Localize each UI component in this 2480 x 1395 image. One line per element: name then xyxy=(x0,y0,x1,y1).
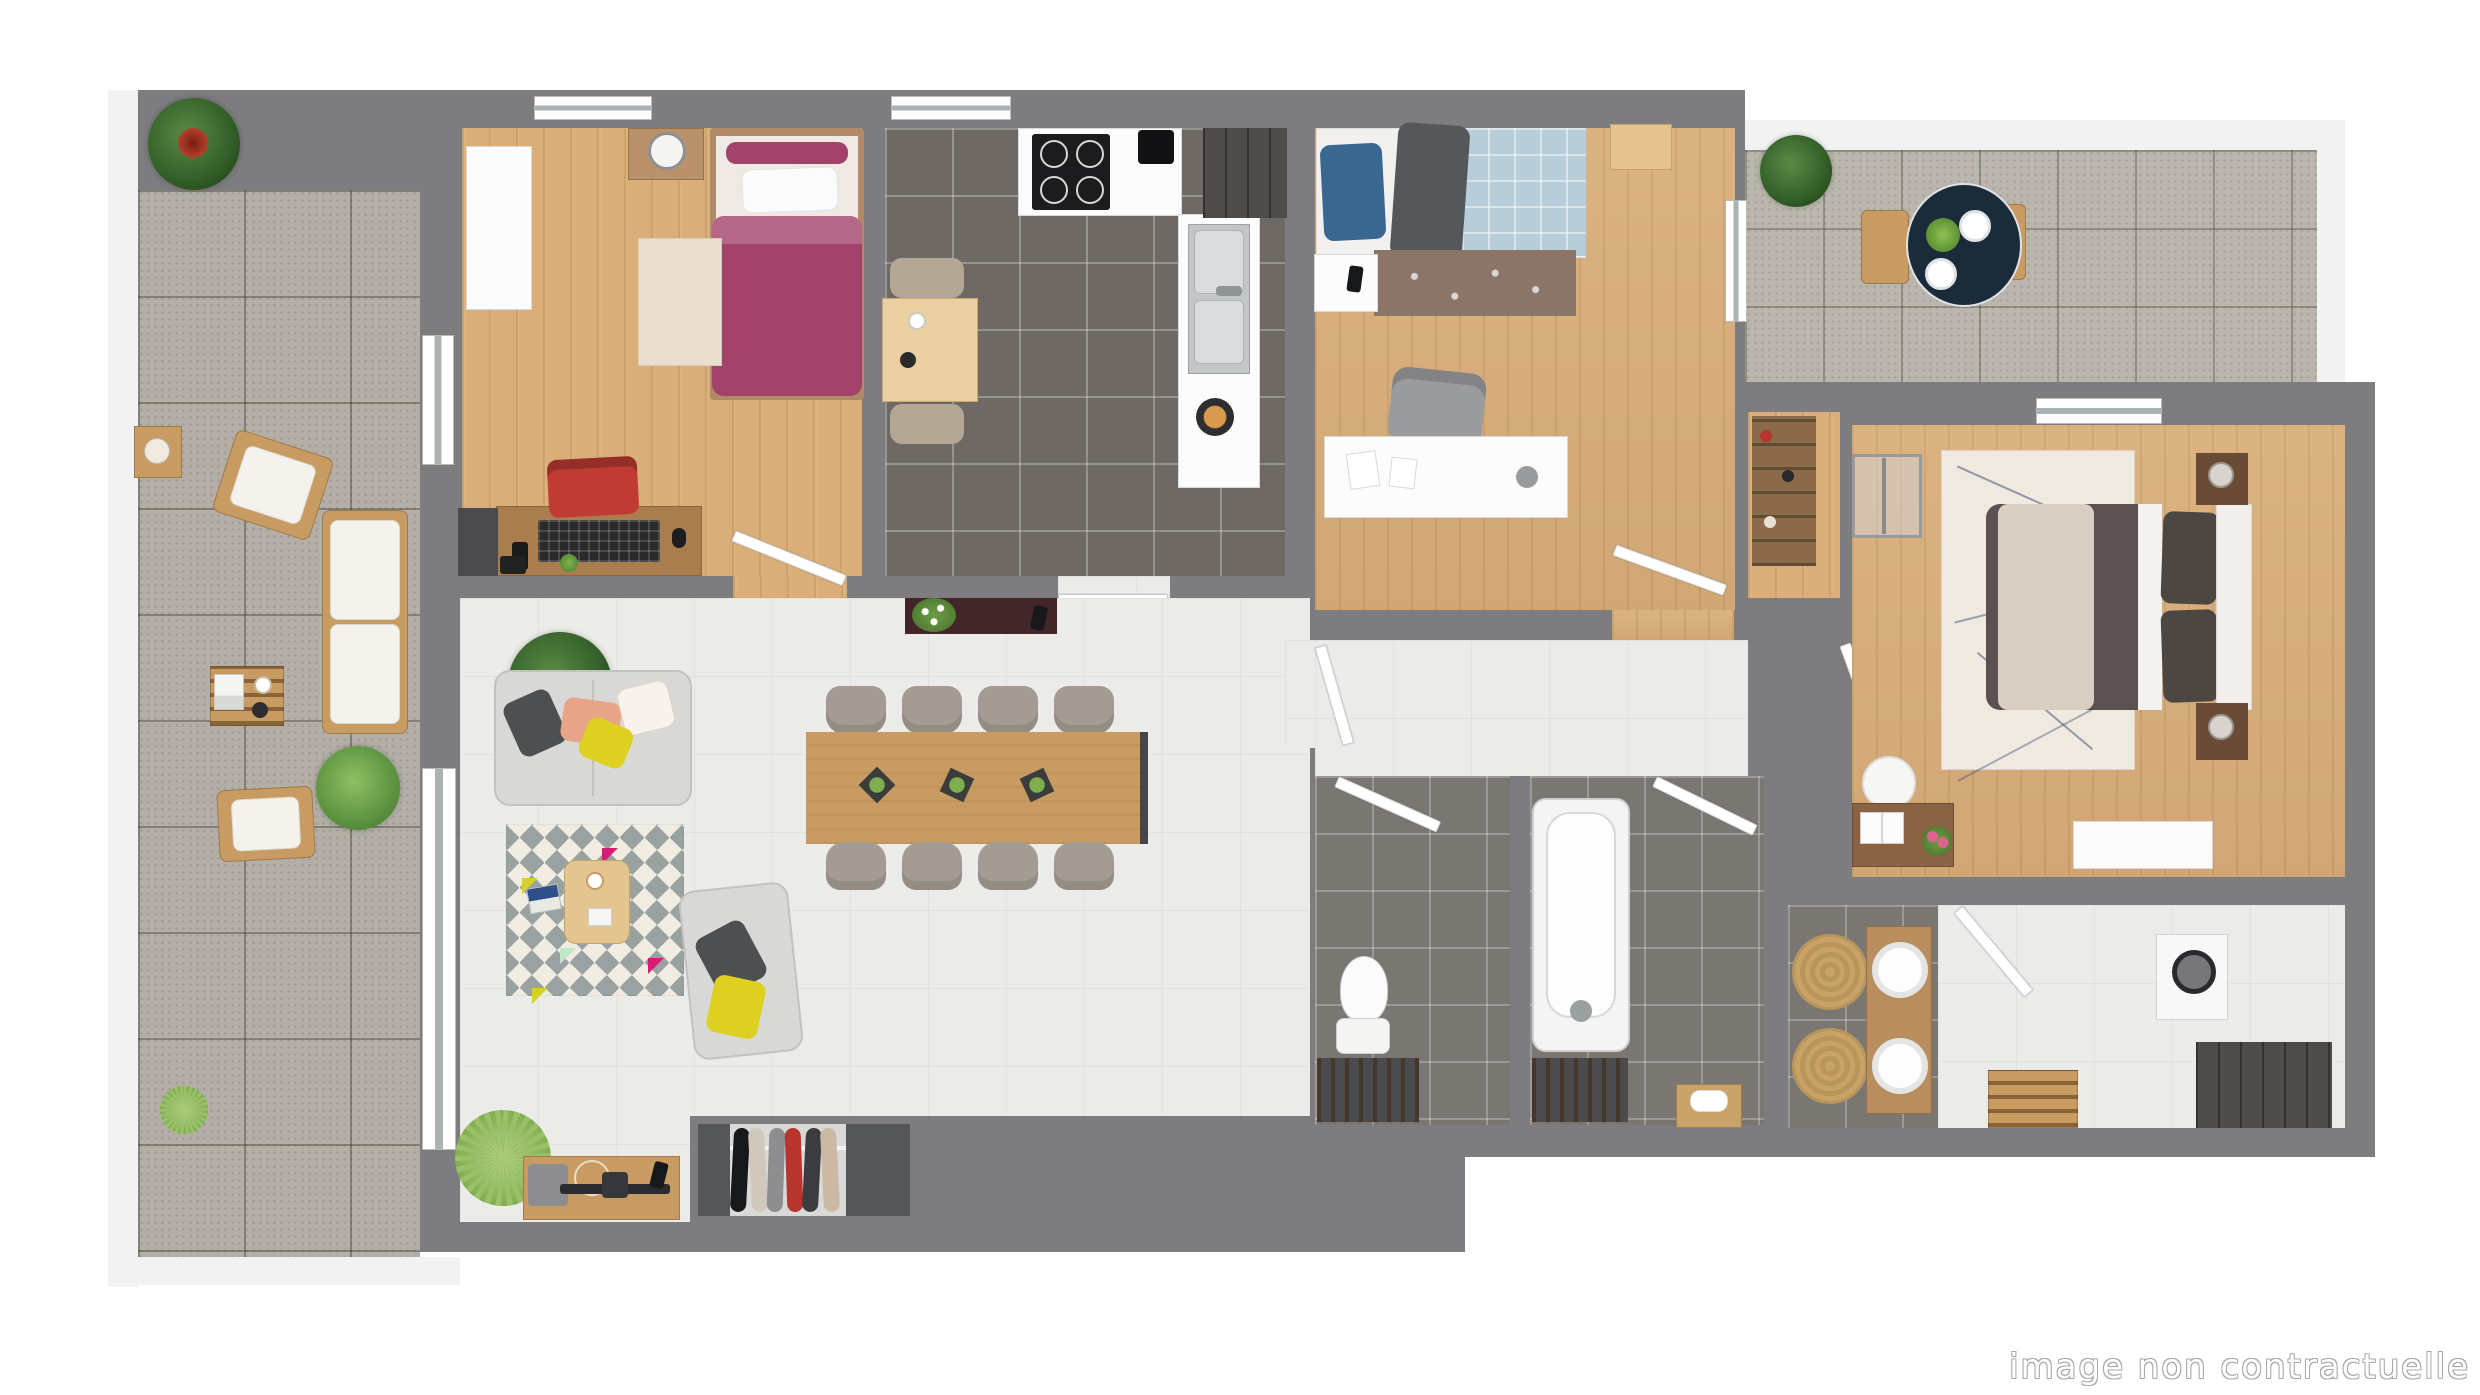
dining-chair-2 xyxy=(902,686,962,734)
lamp-icon-1 xyxy=(2208,462,2234,488)
bedroom1-chair xyxy=(547,456,640,519)
croissant-bowl-icon xyxy=(1196,398,1234,436)
terrace-sofa-cushion-2 xyxy=(330,624,400,724)
wardrobe-panel-left xyxy=(698,1124,730,1216)
burner-icon-4 xyxy=(1076,176,1104,204)
bedroom2-blanket xyxy=(1389,122,1470,263)
bedroom2-window-right xyxy=(1725,200,1747,322)
hallway-living-opening xyxy=(1285,640,1315,748)
shoe-icon-2 xyxy=(1782,470,1794,482)
terrace-left-rim-bottom xyxy=(108,1257,460,1285)
kitchen-bench-top xyxy=(890,258,964,298)
master-window-top xyxy=(2036,398,2162,424)
bedroom2-nightstand xyxy=(1314,254,1378,312)
ensuite-closet xyxy=(2196,1042,2332,1128)
burner-icon-3 xyxy=(1040,176,1068,204)
master-bed-fold xyxy=(2138,504,2162,710)
bedroom2-rug xyxy=(1374,250,1576,316)
clothes-item-3 xyxy=(767,1128,786,1213)
dining-chair-7 xyxy=(978,842,1038,890)
sink-basin-1 xyxy=(1194,230,1244,294)
coffee-cup-icon xyxy=(586,872,604,890)
clothes-rack-bar-icon xyxy=(1882,458,1886,534)
terrace-grass-icon xyxy=(160,1086,208,1134)
bedroom1-bolster-pillow xyxy=(726,142,848,164)
terrace-left-rim-left xyxy=(108,90,138,1287)
tv-stand-icon xyxy=(602,1172,628,1198)
kitchen-bench-bottom xyxy=(890,404,964,444)
wardrobe-panel-right xyxy=(846,1124,910,1216)
console-flowers-icon xyxy=(912,598,956,632)
centerpiece-plant-icon xyxy=(1926,218,1960,252)
hallway-floor xyxy=(1315,640,1748,776)
rug-magazine-icon xyxy=(526,883,562,914)
jute-rug-icon-2 xyxy=(1792,1028,1868,1104)
kitchen-jar-icon xyxy=(900,352,916,368)
floor-plan: image non contractuelle xyxy=(0,0,2480,1395)
clock-icon xyxy=(648,132,686,170)
terrace-tray-icon xyxy=(144,438,170,464)
living-sliding-door xyxy=(422,768,456,1150)
toilet-bowl-icon xyxy=(1340,956,1388,1022)
mouse-icon xyxy=(672,528,686,548)
dining-chair-8 xyxy=(1054,842,1114,890)
terrace-right-rim-top xyxy=(1745,120,2345,150)
shoe-icon-3 xyxy=(1764,516,1776,528)
washer-drum-icon xyxy=(2172,950,2216,994)
master-bed-throw xyxy=(1998,504,2094,710)
bedroom2-pillow xyxy=(1320,142,1387,241)
kitchen-window-top xyxy=(891,96,1011,120)
kitchen-cup-icon xyxy=(908,312,926,330)
bathtub-inner xyxy=(1546,812,1616,1018)
bedroom1-duvet-fold xyxy=(712,216,862,244)
sink-basin-2 xyxy=(1194,300,1244,364)
bedroom2-side-table xyxy=(1610,124,1672,170)
terrace-bush-icon xyxy=(316,746,400,830)
terrace-pot-icon xyxy=(252,702,268,718)
bedroom1-rug xyxy=(638,238,722,366)
shoe-icon-1 xyxy=(1760,430,1772,442)
master-dresser xyxy=(2073,821,2213,869)
terrace-right-chair-left xyxy=(1861,210,1909,284)
lamp-icon-2 xyxy=(2208,714,2234,740)
terrace-sofa-cushion-1 xyxy=(330,520,400,620)
kitchen-table xyxy=(882,298,978,402)
desk-plant-icon xyxy=(560,554,578,572)
burner-icon-2 xyxy=(1076,140,1104,168)
terrace-armchair-2-cushion xyxy=(231,796,302,851)
plate-icon-2 xyxy=(1925,258,1957,290)
burner-icon-1 xyxy=(1040,140,1068,168)
bedroom1-cabinet xyxy=(458,508,498,576)
terrace-plant-flower-icon xyxy=(178,128,208,158)
sink-icon-2 xyxy=(1872,1038,1928,1094)
dining-chair-5 xyxy=(826,842,886,890)
coffee-maker-icon xyxy=(1138,130,1174,164)
bedroom1-window-left xyxy=(422,335,454,465)
dining-chair-3 xyxy=(978,686,1038,734)
clothes-rack xyxy=(1852,454,1922,538)
bathroom-cabinet xyxy=(1532,1058,1628,1122)
clothes-item-4 xyxy=(785,1128,804,1213)
master-pillow-1 xyxy=(2160,511,2219,605)
desk-paper-icon-2 xyxy=(1389,457,1418,490)
camera-icon xyxy=(500,556,526,574)
terrace-dining-table xyxy=(1906,183,2022,307)
faucet-icon xyxy=(1216,286,1242,296)
desk-lamp-icon xyxy=(1516,466,1538,488)
coffee-deco-icon xyxy=(588,908,612,926)
master-book-icon xyxy=(1860,812,1904,844)
bedroom1-window-top xyxy=(534,96,652,120)
master-chair xyxy=(1862,756,1916,810)
master-pillow-2 xyxy=(2160,609,2219,703)
master-flowers-icon xyxy=(1922,826,1952,856)
dining-chair-6 xyxy=(902,842,962,890)
bath-faucet-icon xyxy=(1570,1000,1592,1022)
dining-chair-1 xyxy=(826,686,886,734)
ensuite-bench xyxy=(1988,1070,2078,1128)
desk-paper-icon-1 xyxy=(1346,450,1381,490)
master-bed-frame xyxy=(2216,504,2252,710)
kitchen-closet-nook xyxy=(1203,128,1287,218)
dining-table-edge xyxy=(1140,732,1148,844)
terrace-cup-icon xyxy=(254,676,272,694)
terrace-right-plant-icon xyxy=(1760,135,1832,207)
toilet-tank-icon xyxy=(1336,1018,1390,1054)
bedroom2-door-threshold xyxy=(1612,610,1734,640)
jute-rug-icon-1 xyxy=(1792,934,1868,1010)
wc-cabinet xyxy=(1317,1058,1419,1122)
terrace-right-rim-side xyxy=(2317,150,2345,382)
keyboard-icon xyxy=(538,520,660,562)
bedroom1-wardrobe xyxy=(466,146,532,310)
plate-icon-1 xyxy=(1959,210,1991,242)
terrace-magazine-icon xyxy=(214,674,244,710)
dining-table xyxy=(806,732,1148,844)
terrace-right-floor xyxy=(1745,150,2317,382)
dining-chair-4 xyxy=(1054,686,1114,734)
towels-icon xyxy=(1690,1090,1728,1112)
sink-icon-1 xyxy=(1872,942,1928,998)
bedroom1-pillow xyxy=(741,166,838,213)
watermark: image non contractuelle xyxy=(2009,1347,2470,1387)
